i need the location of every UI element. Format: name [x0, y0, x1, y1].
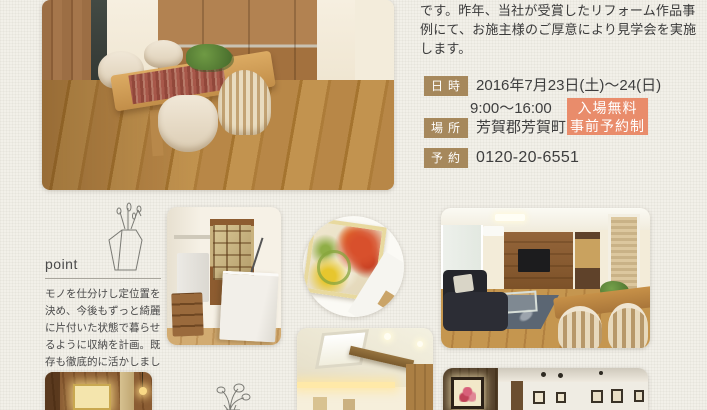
corner-column	[120, 372, 134, 410]
skylight-cove-light	[297, 382, 395, 388]
place-label: 場所	[424, 118, 468, 138]
intro-paragraph: です。昨年、当社が受賞したリフォーム作品事例にて、お施主様のご厚意により見学会を…	[420, 1, 698, 58]
living-aircon	[483, 226, 504, 236]
living-tv	[518, 249, 549, 273]
flyer-page: です。昨年、当社が受賞したリフォーム作品事例にて、お施主様のご厚意により見学会を…	[0, 0, 707, 410]
gallery-frame	[611, 389, 623, 403]
reserve-label: 予約	[424, 148, 468, 168]
skylight-spotlight	[417, 341, 423, 347]
skylight-spotlight	[384, 333, 391, 340]
date-value: 2016年7月23日(土)〜24(日)	[476, 76, 661, 96]
pantry-freezer	[219, 270, 278, 342]
photo-pantry-storage	[167, 207, 281, 345]
living-ceiling-light	[495, 214, 524, 221]
date-label: 日時	[424, 76, 468, 96]
corner-pendant-cord	[142, 372, 143, 388]
corner-pendant-light	[139, 387, 147, 395]
living-cushion	[452, 274, 473, 293]
photo-stained-glass	[303, 216, 404, 317]
pantry-drawers	[171, 292, 203, 336]
skylight-wall-frame	[343, 399, 355, 410]
place-value: 芳賀郡芳賀町	[476, 118, 566, 138]
dining-chair	[218, 70, 271, 135]
badge-line2: 事前予約制	[567, 117, 648, 135]
date-row: 日時 2016年7月23日(土)〜24(日)	[424, 76, 661, 96]
time-value: 9:00〜16:00	[470, 97, 552, 118]
point-title: point	[45, 256, 78, 272]
skylight-wood-column	[406, 364, 433, 410]
gallery-frame	[556, 392, 566, 403]
reserve-row: 予約 0120-20-6551	[424, 148, 579, 168]
living-dining-chair	[608, 303, 648, 348]
stained-glass-ring	[317, 250, 351, 284]
dining-chair	[158, 95, 218, 152]
phone-number: 0120-20-6551	[476, 148, 579, 168]
free-admission-badge: 入場無料 事前予約制	[567, 98, 648, 135]
dining-table-plant	[186, 44, 232, 71]
gallery-door	[511, 381, 523, 410]
living-sofa	[443, 292, 508, 331]
gallery-spotlight	[558, 373, 563, 378]
plant-sketch-illustration	[210, 383, 256, 410]
photo-lit-interior	[45, 372, 152, 410]
gallery-frame	[533, 391, 545, 404]
place-row: 場所 芳賀郡芳賀町	[424, 118, 566, 138]
vase-illustration	[98, 202, 160, 272]
gallery-frame	[591, 390, 603, 403]
corner-shadow	[45, 372, 60, 410]
corner-lit-frame	[73, 384, 112, 410]
photo-living-room	[441, 208, 650, 348]
gallery-frame	[634, 390, 644, 403]
badge-line1: 入場無料	[567, 99, 648, 117]
photo-dining-room	[42, 0, 394, 190]
living-display-cabinet	[575, 232, 600, 292]
photo-skylight-ceiling	[297, 328, 433, 410]
living-dining-chair	[558, 306, 602, 348]
dining-chair	[144, 40, 183, 69]
gallery-flower-art	[459, 387, 475, 402]
skylight-wall-frame	[313, 397, 327, 410]
photo-gallery-hallway	[443, 368, 648, 410]
point-divider	[45, 278, 161, 279]
